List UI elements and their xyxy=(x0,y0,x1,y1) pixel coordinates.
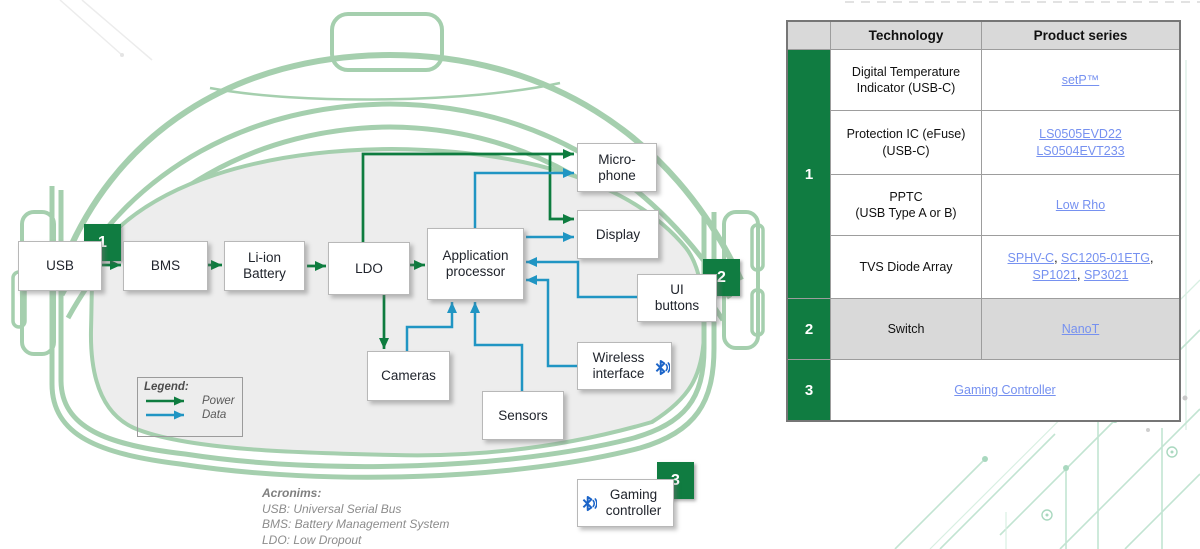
diagram-box-gaming-controller: Gaming controller xyxy=(577,479,674,527)
legend-title: Legend: xyxy=(144,381,236,393)
power-arrow-sample xyxy=(144,396,196,406)
diagram-box-ui-buttons: UI buttons xyxy=(637,274,717,322)
table-header-empty xyxy=(788,22,830,49)
acronym-usb: USB: Universal Serial Bus xyxy=(262,502,449,518)
table-cell-products: Gaming Controller xyxy=(831,360,1179,420)
table-group-number-3: 3 xyxy=(788,360,830,420)
table-cell-products: setP™ xyxy=(982,50,1179,110)
diagram-box-application-processor: Application processor xyxy=(427,228,524,300)
table-cell-technology: Switch xyxy=(831,299,981,359)
table-group-number-1: 1 xyxy=(788,50,830,298)
acronym-bms: BMS: Battery Management System xyxy=(262,517,449,533)
legend-data-label: Data xyxy=(202,409,226,421)
table-header-product-series: Product series xyxy=(982,22,1179,49)
diagram-box-microphone: Micro-phone xyxy=(577,143,657,192)
box-label: Application processor xyxy=(434,248,517,279)
box-label: Wireless interface xyxy=(582,350,655,381)
table-cell-technology: PPTC(USB Type A or B) xyxy=(831,175,981,235)
box-label: BMS xyxy=(151,258,180,274)
technology-product-table: Technology Product series 1 2 3 Digital … xyxy=(786,20,1181,422)
box-label: Micro-phone xyxy=(590,152,644,183)
product-link[interactable]: SC1205-01ETG xyxy=(1061,251,1150,265)
product-link[interactable]: LS0505EVD22 xyxy=(1039,127,1122,141)
acronyms-block: Acronims: USB: Universal Serial Bus BMS:… xyxy=(262,486,449,548)
bluetooth-icon xyxy=(580,494,597,513)
product-link[interactable]: LS0504EVT233 xyxy=(1036,144,1124,158)
table-cell-products: NanoT xyxy=(982,299,1179,359)
diagram-box-bms: BMS xyxy=(123,241,208,291)
table-cell-technology: TVS Diode Array xyxy=(831,236,981,298)
diagram-box-wireless-interface: Wireless interface xyxy=(577,342,672,390)
vr-headset-block-diagram-slide: 1 2 3 USB BMS Li-ion Battery LDO Applica… xyxy=(0,0,1200,549)
box-label: Cameras xyxy=(381,368,436,384)
product-link[interactable]: Gaming Controller xyxy=(954,383,1055,397)
acronym-ldo: LDO: Low Dropout xyxy=(262,533,449,549)
box-label: Li-ion Battery xyxy=(229,250,300,281)
product-link[interactable]: SP1021 xyxy=(1033,268,1077,282)
diagram-box-cameras: Cameras xyxy=(367,351,450,401)
data-arrow-sample xyxy=(144,410,196,420)
table-cell-products: SPHV-C, SC1205-01ETG, SP1021, SP3021 xyxy=(982,236,1179,298)
diagram-box-usb: USB xyxy=(18,241,102,291)
product-link[interactable]: setP™ xyxy=(1062,73,1100,87)
legend-power-label: Power xyxy=(202,395,235,407)
box-label: Sensors xyxy=(498,408,548,424)
box-label: Gaming controller xyxy=(598,487,669,518)
acronyms-title: Acronims: xyxy=(262,486,449,502)
table-cell-technology: Protection IC (eFuse)(USB-C) xyxy=(831,111,981,174)
product-link[interactable]: Low Rho xyxy=(1056,198,1105,212)
table-cell-technology: Digital TemperatureIndicator (USB-C) xyxy=(831,50,981,110)
diagram-box-display: Display xyxy=(577,210,659,259)
box-label: LDO xyxy=(355,261,383,277)
diagram-box-ldo: LDO xyxy=(328,242,410,295)
bluetooth-icon xyxy=(653,358,670,377)
table-cell-products: Low Rho xyxy=(982,175,1179,235)
box-label: Display xyxy=(596,227,640,243)
table-header-technology: Technology xyxy=(831,22,981,49)
table-group-number-2: 2 xyxy=(788,299,830,359)
table-cell-products: LS0505EVD22LS0504EVT233 xyxy=(982,111,1179,174)
diagram-box-liion-battery: Li-ion Battery xyxy=(224,241,305,291)
product-link[interactable]: NanoT xyxy=(1062,322,1100,336)
box-label: UI buttons xyxy=(652,282,702,313)
legend-box: Legend: Power Data xyxy=(137,377,243,437)
product-link[interactable]: SPHV-C xyxy=(1008,251,1055,265)
box-label: USB xyxy=(46,258,74,274)
diagram-box-sensors: Sensors xyxy=(482,391,564,440)
product-link[interactable]: SP3021 xyxy=(1084,268,1128,282)
